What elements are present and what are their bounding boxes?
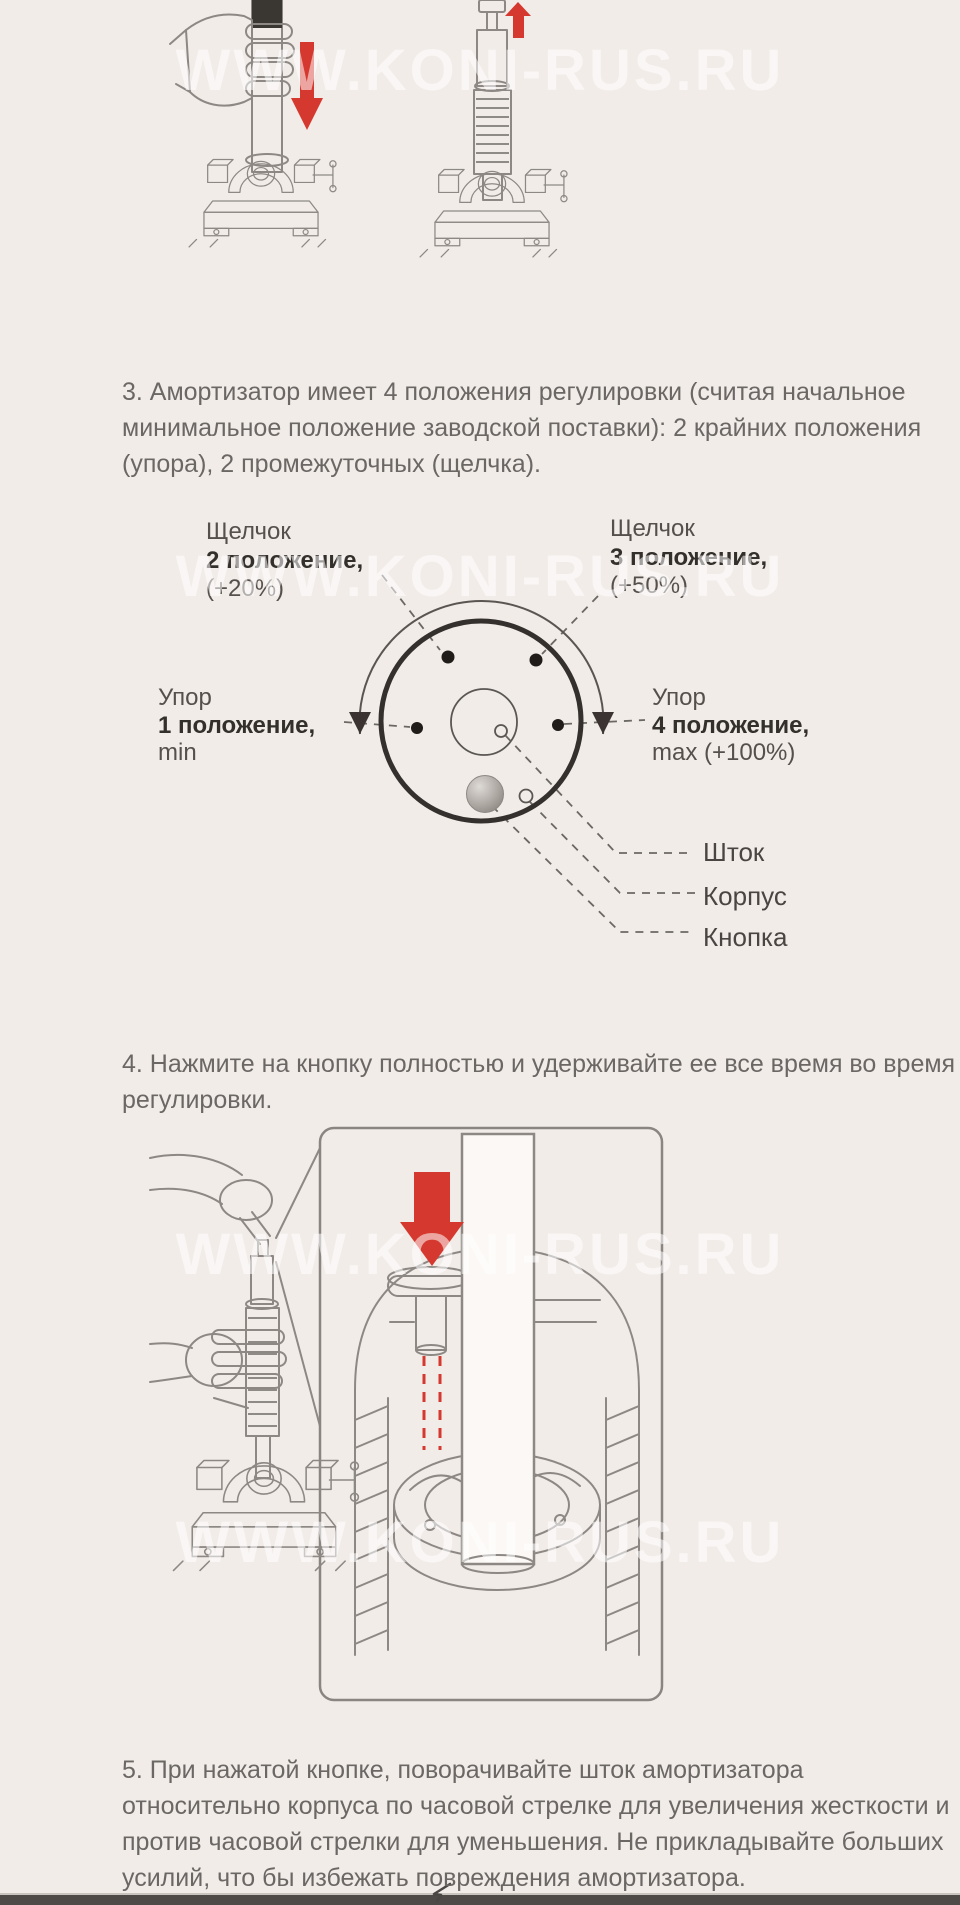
vise-illustration-pull-up — [420, 0, 567, 257]
step-3-line: (упора), 2 промежуточных (щелчка). — [122, 446, 921, 482]
shock-sleeve — [246, 1308, 279, 1436]
dial-label-position-4: Упор 4 положение, max (+100%) — [652, 684, 809, 767]
dial-label-line: Щелчок — [610, 515, 767, 544]
dial-label-line: Упор — [652, 684, 809, 712]
step-5-text: 5. При нажатой кнопке, поворачивайте што… — [122, 1752, 950, 1896]
step-5-line: усилий, что бы избежать повреждения амор… — [122, 1860, 950, 1896]
dial-label-position-1: Упор 1 положение, min — [158, 684, 315, 767]
step-3-text: 3. Амортизатор имеет 4 положения регулир… — [122, 374, 921, 482]
dial-label-line: 3 положение, — [610, 544, 767, 573]
up-arrow-icon — [505, 2, 531, 38]
dial-label-line: max (+100%) — [652, 739, 809, 767]
step-3-line: 3. Амортизатор имеет 4 положения регулир… — [122, 374, 921, 410]
step-4-line: регулировки. — [122, 1082, 955, 1118]
dial-label-line: 1 положение, — [158, 712, 315, 740]
button-ball — [467, 776, 504, 813]
dial-label-line: (+50%) — [610, 572, 767, 601]
step-4-line: 4. Нажмите на кнопку полностью и удержив… — [122, 1046, 955, 1082]
body-pin-circle — [520, 790, 533, 803]
body-part-label: Корпус — [703, 882, 787, 910]
dial-label-position-2: Щелчок 2 положение, (+20%) — [206, 518, 363, 604]
dial-label-line: 4 положение, — [652, 712, 809, 740]
step-4-text: 4. Нажмите на кнопку полностью и удержив… — [122, 1046, 955, 1118]
instruction-page: WWW.KONI-RUS.RU 3. Амортизатор имеет 4 п… — [0, 0, 960, 1905]
shock-sleeve — [474, 90, 511, 174]
piston-rod — [462, 1134, 534, 1564]
button-press-cutaway-illustration — [0, 1120, 960, 1720]
step-5-line: относительно корпуса по часовой стрелке … — [122, 1788, 950, 1824]
hand-illustration — [170, 15, 294, 106]
position-dots — [411, 651, 564, 735]
adjuster-dial-diagram — [0, 410, 960, 970]
rod-circle — [451, 689, 517, 755]
down-arrow-icon — [291, 42, 323, 130]
rotation-limit-arrow-left-icon — [349, 712, 371, 734]
dial-label-line: Щелчок — [206, 518, 363, 547]
vise-illustrations — [0, 0, 960, 290]
rod-part-label: Шток — [703, 838, 764, 866]
dial-label-line: (+20%) — [206, 575, 363, 604]
dial-label-line: min — [158, 739, 315, 767]
dial-label-line: Упор — [158, 684, 315, 712]
step-3-line: минимальное положение заводской поставки… — [122, 410, 921, 446]
step-5-line: против часовой стрелки для уменьшения. Н… — [122, 1824, 950, 1860]
page-bottom-border — [0, 1895, 960, 1905]
dial-label-position-3: Щелчок 3 положение, (+50%) — [610, 515, 767, 601]
vise-illustration-press-down — [170, 0, 336, 247]
rod-pin-circle — [495, 725, 507, 737]
dial-label-line: 2 положение, — [206, 547, 363, 576]
step-5-line: 5. При нажатой кнопке, поворачивайте што… — [122, 1752, 950, 1788]
button-part-label: Кнопка — [703, 923, 787, 951]
